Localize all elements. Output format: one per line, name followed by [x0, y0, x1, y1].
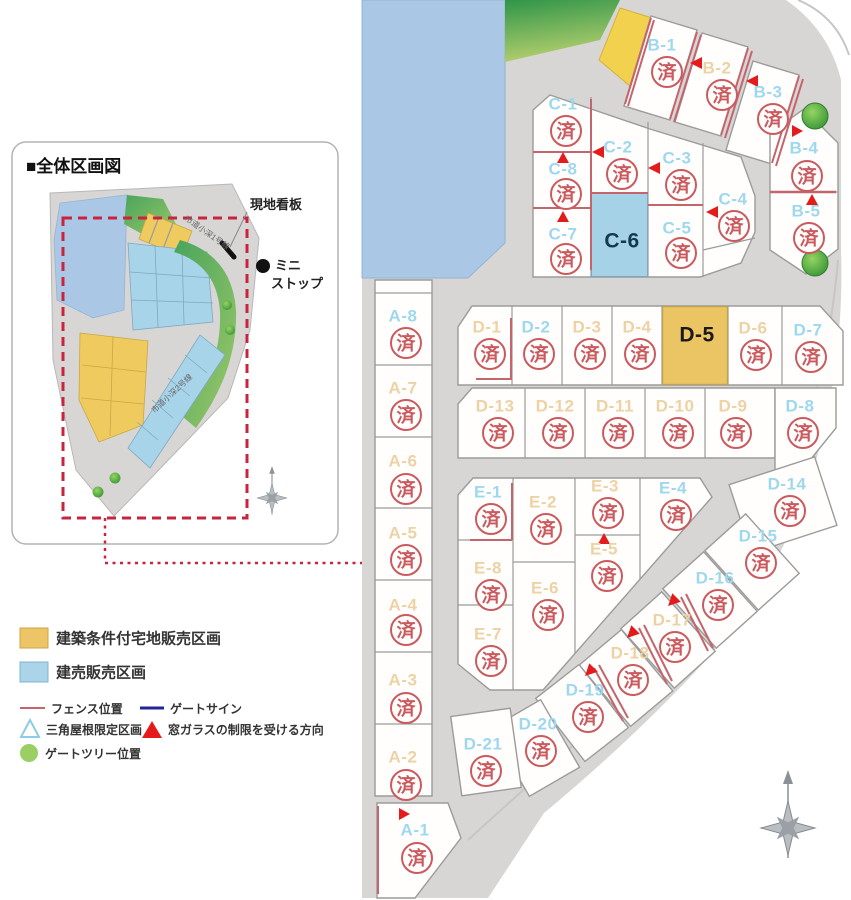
svg-text:済: 済 — [666, 504, 686, 527]
sold-stamp-D-10: 済 — [663, 418, 693, 448]
lot-label-C-5: C-5 — [663, 219, 692, 238]
sold-stamp-D-21: 済 — [471, 756, 501, 786]
legend-joken-swatch — [20, 628, 48, 648]
lot-label-C-6: C-6 — [604, 230, 639, 253]
legend-window-arrow-icon — [142, 721, 162, 738]
lot-label-A-4: A-4 — [389, 596, 418, 615]
sold-stamp-D-13: 済 — [483, 418, 513, 448]
sold-stamp-B-3: 済 — [758, 104, 788, 134]
lot-label-A-6: A-6 — [389, 452, 418, 471]
svg-text:済: 済 — [712, 84, 732, 107]
sold-stamp-D-3: 済 — [575, 339, 605, 369]
sold-stamp-D-4: 済 — [625, 339, 655, 369]
lot-label-B-4: B-4 — [790, 139, 819, 158]
svg-text:済: 済 — [801, 346, 821, 369]
sold-stamp-A-1: 済 — [402, 843, 432, 873]
sold-stamp-D-2: 済 — [524, 339, 554, 369]
sold-stamp-E-7: 済 — [476, 646, 506, 676]
sold-stamp-A-8: 済 — [391, 328, 421, 358]
lot-label-D-16: D-16 — [696, 569, 735, 588]
sold-stamp-A-6: 済 — [391, 474, 421, 504]
legend-gate-tree-label: ゲートツリー位置 — [45, 746, 141, 761]
sold-stamp-A-2: 済 — [391, 770, 421, 800]
sold-stamp-D-18: 済 — [618, 665, 648, 695]
inset-gate-tree-icon — [93, 487, 104, 498]
svg-text:済: 済 — [488, 422, 508, 445]
legend-kenbai-label: 建売販売区画 — [56, 664, 146, 682]
svg-text:済: 済 — [556, 183, 576, 206]
lot-label-C-2: C-2 — [604, 138, 633, 157]
svg-text:済: 済 — [726, 422, 746, 445]
svg-text:済: 済 — [481, 508, 501, 531]
lot-label-D-19: D-19 — [566, 681, 605, 700]
legend-joken-label: 建築条件付宅地販売区画 — [56, 630, 221, 648]
sold-stamp-C-3: 済 — [666, 170, 696, 200]
svg-text:済: 済 — [396, 697, 416, 720]
lot-label-D-4: D-4 — [623, 318, 652, 337]
svg-text:済: 済 — [396, 404, 416, 427]
sold-stamp-D-9: 済 — [721, 418, 751, 448]
svg-text:済: 済 — [708, 594, 728, 617]
svg-text:済: 済 — [476, 760, 496, 783]
site-plan-page: A-1済A-2済A-3済A-4済A-5済A-6済A-7済A-8済B-1済B-2済… — [0, 0, 851, 900]
inset-store-label-1: ミニ — [275, 258, 301, 273]
sold-stamp-A-7: 済 — [391, 400, 421, 430]
svg-text:済: 済 — [657, 61, 677, 84]
lot-label-C-7: C-7 — [549, 225, 578, 244]
svg-text:済: 済 — [480, 343, 500, 366]
legend-triangle-roof-label: 三角屋根限定区画 — [46, 722, 142, 737]
svg-text:済: 済 — [396, 619, 416, 642]
svg-text:済: 済 — [481, 584, 501, 607]
legend-gate-sign-label: ゲートサイン — [170, 701, 242, 716]
lot-label-E-5: E-5 — [590, 540, 618, 559]
sold-stamp-D-16: 済 — [703, 590, 733, 620]
legend-fence-label: フェンス位置 — [51, 701, 123, 716]
sold-stamp-E-8: 済 — [476, 580, 506, 610]
sold-stamp-C-7: 済 — [551, 244, 581, 274]
legend-gate-tree-icon — [20, 744, 38, 762]
svg-text:済: 済 — [746, 344, 766, 367]
svg-text:済: 済 — [531, 740, 551, 763]
svg-text:済: 済 — [724, 215, 744, 238]
lot-label-D-14: D-14 — [768, 475, 807, 494]
lot-label-D-11: D-11 — [596, 397, 634, 416]
lot-label-D-8: D-8 — [786, 397, 815, 416]
lot-label-E-6: E-6 — [531, 579, 559, 598]
svg-text:済: 済 — [630, 343, 650, 366]
lot-label-D-21: D-21 — [464, 735, 503, 754]
lot-label-A-2: A-2 — [389, 748, 418, 767]
svg-text:済: 済 — [529, 343, 549, 366]
inset-title: ■全体区画図 — [26, 156, 121, 176]
sold-stamp-D-17: 済 — [660, 632, 690, 662]
inset-overview-panel: ■全体区画図 現地看板 ミニ ストップ 市道小深1号線 — [12, 142, 362, 563]
inset-store-label-2: ストップ — [271, 276, 324, 291]
svg-text:済: 済 — [580, 343, 600, 366]
sold-stamp-E-4: 済 — [661, 500, 691, 530]
sold-stamp-B-5: 済 — [794, 223, 824, 253]
lot-label-A-5: A-5 — [389, 524, 418, 543]
lot-label-A-1: A-1 — [401, 821, 430, 840]
svg-text:済: 済 — [612, 163, 632, 186]
sold-stamp-D-15: 済 — [746, 548, 776, 578]
lot-label-A-8: A-8 — [389, 307, 418, 326]
svg-text:済: 済 — [751, 552, 771, 575]
sold-stamp-A-3: 済 — [391, 693, 421, 723]
lot-label-E-1: E-1 — [474, 483, 502, 502]
lot-label-E-4: E-4 — [659, 479, 687, 498]
svg-text:済: 済 — [556, 248, 576, 271]
sold-stamp-E-3: 済 — [593, 498, 623, 528]
svg-text:済: 済 — [623, 669, 643, 692]
svg-text:済: 済 — [671, 242, 691, 265]
svg-text:済: 済 — [536, 518, 556, 541]
sold-stamp-D-11: 済 — [603, 418, 633, 448]
svg-text:済: 済 — [608, 422, 628, 445]
lot-label-C-3: C-3 — [663, 149, 692, 168]
lot-label-B-1: B-1 — [648, 36, 677, 55]
lot-label-C-4: C-4 — [719, 190, 748, 209]
svg-text:済: 済 — [671, 174, 691, 197]
sold-stamp-D-6: 済 — [741, 340, 771, 370]
lot-label-D-15: D-15 — [739, 527, 778, 546]
svg-text:済: 済 — [598, 502, 618, 525]
sold-stamp-B-2: 済 — [707, 80, 737, 110]
gate-tree-icon — [802, 250, 828, 276]
sold-stamp-E-6: 済 — [533, 600, 563, 630]
svg-text:済: 済 — [396, 478, 416, 501]
lot-label-C-8: C-8 — [549, 160, 578, 179]
svg-text:済: 済 — [538, 604, 558, 627]
legend: 建築条件付宅地販売区画 建売販売区画 フェンス位置 ゲートサイン 三角屋根限定区… — [20, 628, 324, 762]
legend-kenbai-swatch — [20, 662, 48, 682]
svg-text:済: 済 — [763, 108, 783, 131]
svg-text:済: 済 — [668, 422, 688, 445]
lot-label-D-12: D-12 — [536, 397, 575, 416]
sold-stamp-C-1: 済 — [551, 116, 581, 146]
lot-label-E-7: E-7 — [474, 625, 502, 644]
svg-text:済: 済 — [548, 422, 568, 445]
lot-label-B-2: B-2 — [703, 59, 732, 78]
sold-stamp-D-7: 済 — [796, 342, 826, 372]
water-area — [362, 0, 505, 278]
lot-label-A-3: A-3 — [389, 671, 418, 690]
sold-stamp-D-20: 済 — [526, 736, 556, 766]
sold-stamp-D-19: 済 — [573, 702, 603, 732]
sold-stamp-D-14: 済 — [775, 496, 805, 526]
svg-text:済: 済 — [481, 650, 501, 673]
inset-sign-label: 現地看板 — [250, 197, 303, 212]
lot-label-D-9: D-9 — [719, 397, 748, 416]
legend-window-label: 窓ガラスの制限を受ける方向 — [168, 722, 324, 737]
svg-text:済: 済 — [665, 636, 685, 659]
svg-text:済: 済 — [797, 165, 817, 188]
svg-text:済: 済 — [396, 549, 416, 572]
svg-text:済: 済 — [396, 774, 416, 797]
sold-stamp-B-1: 済 — [652, 57, 682, 87]
lot-label-C-1: C-1 — [549, 95, 578, 114]
lot-label-D-17: D-17 — [653, 611, 692, 630]
svg-text:済: 済 — [407, 847, 427, 870]
gate-tree-icon — [802, 103, 828, 129]
site-plan-canvas: A-1済A-2済A-3済A-4済A-5済A-6済A-7済A-8済B-1済B-2済… — [0, 0, 851, 900]
sold-stamp-C-8: 済 — [551, 179, 581, 209]
sold-stamp-C-2: 済 — [607, 159, 637, 189]
ministop-dot-icon — [256, 259, 270, 273]
svg-text:済: 済 — [597, 565, 617, 588]
compass-rose — [761, 770, 815, 858]
sold-stamp-A-5: 済 — [391, 545, 421, 575]
sold-stamp-C-5: 済 — [666, 238, 696, 268]
inset-gate-tree-icon — [110, 473, 121, 484]
svg-text:済: 済 — [556, 120, 576, 143]
sold-stamp-D-12: 済 — [543, 418, 573, 448]
lot-label-A-7: A-7 — [389, 379, 418, 398]
lot-label-E-3: E-3 — [591, 477, 619, 496]
lot-label-E-2: E-2 — [529, 493, 557, 512]
lot-label-D-20: D-20 — [519, 715, 558, 734]
lot-label-D-2: D-2 — [522, 318, 551, 337]
svg-text:済: 済 — [780, 500, 800, 523]
lot-label-D-7: D-7 — [794, 321, 823, 340]
sold-stamp-E-5: 済 — [592, 561, 622, 591]
lot-label-B-5: B-5 — [792, 202, 821, 221]
sold-stamp-C-4: 済 — [719, 211, 749, 241]
block-d-row2 — [458, 388, 836, 470]
lot-label-D-3: D-3 — [573, 318, 602, 337]
lot-label-D-5: D-5 — [679, 324, 714, 347]
lot-label-B-3: B-3 — [754, 83, 783, 102]
lot-label-D-18: D-18 — [611, 644, 650, 663]
sold-stamp-D-1: 済 — [475, 339, 505, 369]
svg-text:済: 済 — [578, 706, 598, 729]
lot-label-D-13: D-13 — [476, 397, 515, 416]
main-map: A-1済A-2済A-3済A-4済A-5済A-6済A-7済A-8済B-1済B-2済… — [362, 0, 849, 898]
svg-text:済: 済 — [396, 332, 416, 355]
sold-stamp-D-8: 済 — [788, 418, 818, 448]
lot-label-D-6: D-6 — [739, 319, 768, 338]
sold-stamp-E-2: 済 — [531, 514, 561, 544]
svg-text:済: 済 — [793, 422, 813, 445]
sold-stamp-A-4: 済 — [391, 615, 421, 645]
lot-label-D-10: D-10 — [656, 397, 695, 416]
sold-stamp-E-1: 済 — [476, 504, 506, 534]
legend-triangle-roof-icon — [21, 720, 39, 737]
svg-text:済: 済 — [799, 227, 819, 250]
sold-stamp-B-4: 済 — [792, 161, 822, 191]
lot-label-D-1: D-1 — [473, 318, 502, 337]
lot-label-E-8: E-8 — [474, 559, 502, 578]
inset-gate-tree-icon — [225, 325, 235, 335]
inset-gate-tree-icon — [222, 300, 232, 310]
